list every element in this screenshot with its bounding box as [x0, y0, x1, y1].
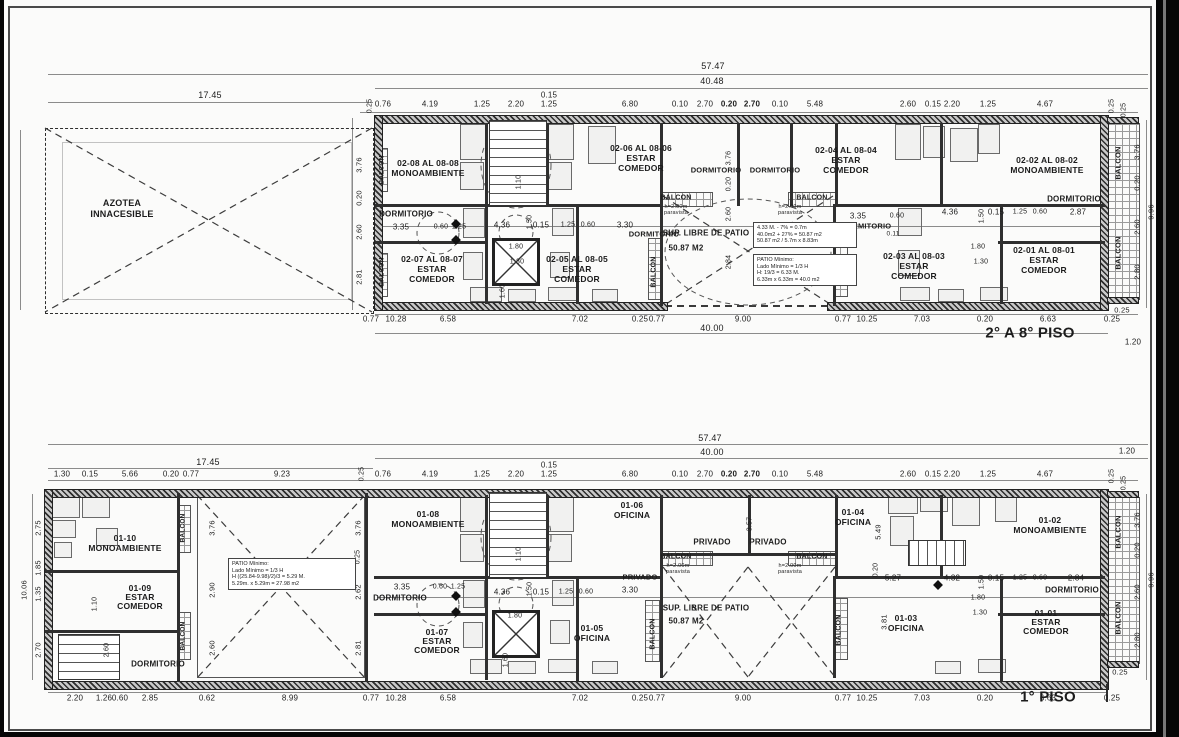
dim-text: paravista: [666, 569, 690, 575]
dim-text: 2.20: [944, 100, 960, 109]
note-line: Lado Mínimo = 1/3 H: [757, 264, 853, 271]
wall: [1108, 298, 1138, 303]
dim-text: 0.15: [988, 208, 1004, 217]
dim-text: 1.80: [508, 613, 522, 620]
dim-text: 4.36: [494, 221, 510, 230]
fixture: [978, 124, 1000, 154]
dim-text: 4.32: [944, 574, 960, 583]
dim-text: 2.20: [508, 100, 524, 109]
unit-01-08: 01-08: [417, 509, 440, 519]
dimension-line: [375, 458, 1148, 459]
dim-text: BALCON: [1114, 236, 1123, 269]
dim-text: 9.96: [1147, 204, 1156, 219]
wall: [1108, 492, 1138, 497]
dim-text: PRIVADO: [693, 538, 730, 547]
interior-wall: [45, 630, 179, 633]
dim-text: ESTAR: [1029, 255, 1058, 265]
dim-text: 2.80: [1133, 264, 1142, 279]
unit-02-01: 02-01 AL 08-01: [1013, 245, 1075, 255]
stair-unit-01-09: [58, 634, 120, 680]
fixture: [592, 289, 618, 302]
dim-text: 6.63: [1040, 315, 1056, 324]
fixture: [550, 620, 570, 644]
dim-text: 9.23: [274, 470, 290, 479]
dim-text: COMEDOR: [117, 601, 163, 611]
unit-01-05: 01-05: [581, 623, 604, 633]
dim-text: 0.15: [541, 91, 557, 100]
dim-text: BALCON: [836, 614, 843, 645]
dim-text: 1.25: [474, 100, 490, 109]
wall: [1101, 116, 1108, 310]
dim-text: 2.70: [697, 100, 713, 109]
dim-text: COMEDOR: [618, 163, 664, 173]
note-line: 50.87 m2 / 5.7m x 8.83m: [757, 238, 853, 245]
dim-text: BALCON: [1114, 601, 1123, 634]
dim-text: COMEDOR: [1021, 265, 1067, 275]
dim-text: 3.76: [208, 520, 217, 535]
azotea-label: AZOTEA: [103, 198, 141, 208]
dim-text: OFICINA: [574, 633, 610, 643]
dim-text: 1.50: [979, 575, 986, 589]
dimension-line: [20, 130, 21, 310]
wall: [45, 490, 1108, 497]
dim-text: 2.70: [744, 100, 760, 109]
dim-text: 40.00: [700, 447, 724, 457]
dim-text: MONOAMBIENTE: [88, 543, 161, 553]
dim-text: 3.35: [850, 212, 866, 221]
dim-text: 2.60: [104, 643, 111, 657]
dim-text: 1.25: [559, 589, 573, 596]
dim-text: 0.20: [355, 190, 364, 205]
dim-text: 3.35: [393, 223, 409, 232]
dim-text: 0.77: [835, 315, 851, 324]
dim-text: 0.20: [1133, 542, 1142, 557]
screen-edge-highlight: [1163, 0, 1166, 737]
dim-text: 7.03: [914, 315, 930, 324]
dim-text: 1.25: [541, 470, 557, 479]
dim-text: 1.25: [541, 100, 557, 109]
dim-text: 2.60: [900, 100, 916, 109]
unit-01-06: 01-06: [621, 500, 644, 510]
dim-text: 0.60: [112, 694, 128, 703]
fixture: [463, 580, 485, 608]
patio-note-min-upper: PATIO Mínimo:Lado Mínimo = 1/3 HH: 19/3 …: [753, 254, 857, 286]
note-line: 4.33 M. - 7% = 0.7m: [757, 225, 853, 232]
dim-text: 40.00: [700, 323, 724, 333]
dim-text: 1.50: [527, 215, 534, 229]
unit-02-06: 02-06 AL 08-06: [610, 143, 672, 153]
dim-text: INNACESIBLE: [90, 209, 153, 219]
dim-text: 1.30: [510, 259, 524, 266]
dim-total-upper: 57.47: [701, 61, 725, 71]
fixture: [463, 252, 483, 280]
dim-text: 2.81: [355, 269, 364, 284]
wall: [1101, 490, 1108, 689]
interior-wall: [660, 495, 663, 579]
dim-text: 0.20: [726, 177, 733, 191]
dim-text: 10.25: [856, 315, 877, 324]
dim-text: PRIVADO: [749, 538, 786, 547]
dimension-line: [48, 102, 373, 103]
dim-text: 0.15: [925, 470, 941, 479]
fixture: [895, 124, 921, 160]
dim-text: paravista: [778, 210, 802, 216]
patio-mid-cross-right: [748, 567, 835, 677]
fixture: [592, 661, 618, 674]
dim-text: 0.60: [434, 224, 448, 231]
screen-edge-right: [1156, 0, 1179, 737]
dim-azotea-width: 17.45: [198, 90, 222, 100]
fixture: [952, 496, 980, 526]
dim-text: 2.90: [208, 582, 217, 597]
fixture: [52, 520, 76, 538]
dim-text: OFICINA: [888, 623, 924, 633]
dim-text: BALCON: [1114, 146, 1123, 179]
dim-text: BALCON: [660, 554, 691, 561]
dim-text: OFICINA: [614, 510, 650, 520]
dim-text: 1.25: [980, 470, 996, 479]
dim-text: 0.15: [925, 100, 941, 109]
patio-note-min-lower: PATIO Mínimo:Lado Mínimo = 1/3 HH ((25.8…: [228, 558, 356, 590]
dim-text: 1.10: [516, 175, 523, 189]
dim-text: 1.25: [1013, 209, 1027, 216]
dim-text: 0.20: [721, 100, 737, 109]
dim-text: 1.80: [971, 244, 985, 251]
dim-text: 3.57: [747, 517, 754, 531]
dim-text: 2.75: [34, 520, 43, 535]
dim-text: BALCON: [651, 256, 658, 287]
wall: [45, 490, 52, 689]
dim-text: 0.25: [1109, 469, 1116, 483]
dim-text: 3.76: [1133, 144, 1142, 159]
dimension-line: [48, 480, 1138, 481]
dim-text: 0.77: [649, 694, 665, 703]
dim-text: 0.25: [1121, 476, 1128, 490]
dim-text: 50.87 M2: [669, 617, 704, 626]
dim-text: 0.15: [541, 461, 557, 470]
dim-text: 4.36: [494, 588, 510, 597]
dim-text: DORMITORIO: [691, 166, 742, 175]
fixture: [463, 622, 483, 648]
dim-text: 2.60: [355, 224, 364, 239]
dim-text: 1.30: [974, 259, 988, 266]
dim-text: 0.76: [375, 470, 391, 479]
interior-wall: [45, 570, 179, 573]
dim-text: 0.20: [1133, 175, 1142, 190]
dim-text: 9.00: [735, 315, 751, 324]
dim-text: 2.20: [508, 470, 524, 479]
fixture: [950, 128, 978, 162]
dim-text: 10.28: [385, 694, 406, 703]
wall: [828, 303, 1108, 310]
note-line: 6.33m x 6.33m = 40.0 m2: [757, 277, 853, 284]
fixture: [463, 208, 485, 238]
unit-02-08: 02-08 AL 08-08: [397, 158, 459, 168]
dim-text: 7.02: [572, 694, 588, 703]
plan-title-lower: 1° PISO: [1020, 689, 1076, 706]
azotea-cross: [45, 128, 372, 312]
wall: [1108, 118, 1138, 123]
dim-text: 1.30: [973, 610, 987, 617]
interior-wall: [660, 204, 663, 306]
dim-text: 8.99: [282, 694, 298, 703]
dim-text: 1.10: [92, 597, 99, 611]
dim-text: 0.60: [1033, 575, 1047, 582]
dim-text: 0.15: [82, 470, 98, 479]
dim-text: 2.80: [1133, 632, 1142, 647]
dimension-line: [375, 314, 1138, 315]
fixture: [980, 287, 1008, 301]
interior-wall: [1000, 578, 1003, 682]
dim-text: 3.81: [880, 614, 889, 629]
dim-text: 0.20: [873, 563, 880, 577]
dim-text: 6.80: [622, 100, 638, 109]
fixture: [900, 287, 930, 301]
dim-text: 3.30: [617, 221, 633, 230]
interior-wall: [1000, 206, 1003, 304]
dim-text: 1.10: [516, 547, 523, 561]
dim-text: 10.25: [856, 694, 877, 703]
dim-text: 3.76: [1133, 512, 1142, 527]
dim-text: 4.36: [942, 208, 958, 217]
dim-text: 5.66: [122, 470, 138, 479]
dim-text: 1.20: [1125, 338, 1141, 347]
unit-01-10: 01-10: [114, 533, 137, 543]
dim-text: BALCON: [796, 554, 827, 561]
dim-text: COMEDOR: [554, 274, 600, 284]
dim-text: 4.19: [422, 470, 438, 479]
note-line: 5.29m. x 5.29m = 27.98 m2: [232, 581, 352, 588]
dim-text: 6.58: [440, 694, 456, 703]
dim-text: 1.20: [1119, 447, 1135, 456]
dim-text: 0.11: [887, 231, 900, 238]
dim-text: 2.85: [142, 694, 158, 703]
dim-text: BALCON: [1114, 515, 1123, 548]
dim-text: 0.20: [977, 315, 993, 324]
dim-text: 0.25: [632, 694, 648, 703]
interior-wall: [485, 123, 488, 304]
dim-text: 3.35: [394, 583, 410, 592]
dim-text: 4.67: [1037, 100, 1053, 109]
unit-02-04: 02-04 AL 08-04: [815, 145, 877, 155]
dim-text: 2.60: [900, 470, 916, 479]
dim-text: BALCON: [660, 195, 691, 202]
dim-text: DORMITORIO: [379, 210, 433, 219]
dim-text: DORMITORIO: [750, 166, 801, 175]
dim-text: DORMITORIO: [373, 594, 427, 603]
dim-text: 0.77: [835, 694, 851, 703]
dim-text: 0.76: [375, 100, 391, 109]
patio-label-lower: SUP. LIBRE DE PATIO: [663, 604, 749, 613]
unit-01-04: 01-04: [842, 507, 865, 517]
dim-text: 0.25: [1104, 694, 1120, 703]
dim-text: 4.67: [1037, 470, 1053, 479]
dim-text: MONOAMBIENTE: [391, 519, 464, 529]
interior-wall: [998, 241, 1105, 244]
unit-01-03: 01-03: [895, 613, 918, 623]
fixture: [82, 496, 110, 518]
dim-text: BALCON: [650, 618, 657, 649]
dim-text: paravista: [778, 569, 802, 575]
dim-text: BALCON: [180, 621, 187, 650]
interior-wall: [835, 204, 1105, 207]
unit-02-07: 02-07 AL 08-07: [401, 254, 463, 264]
dim-text: 4.19: [422, 100, 438, 109]
dim-text: 3.76: [355, 157, 364, 172]
dim-text: ESTAR: [899, 261, 928, 271]
dim-text: 2.84: [1068, 574, 1084, 583]
dim-text: 2.60: [1133, 584, 1142, 599]
fixture: [508, 661, 536, 674]
interior-wall: [485, 495, 488, 680]
dim-text: DORMITORIO: [1047, 195, 1101, 204]
dim-text: 1.85: [34, 560, 43, 575]
interior-wall: [374, 613, 486, 616]
floor-plan-canvas: 57.4740.4817.450.764.191.252.200.151.256…: [0, 0, 1179, 737]
dim-text: 9.96: [1147, 572, 1156, 587]
dim-text: ESTAR: [626, 153, 655, 163]
dim-text: PRIVADO: [622, 573, 657, 582]
dim-text: 0.15: [988, 574, 1004, 583]
dim-text: BALCON: [796, 195, 827, 202]
dim-text: 0.25: [632, 315, 648, 324]
dim-text: 10.06: [20, 580, 29, 600]
dim-text: ESTAR: [417, 264, 446, 274]
interior-wall: [940, 123, 943, 206]
dim-text: 0.60: [433, 584, 447, 591]
dim-text: OFICINA: [835, 517, 871, 527]
dim-text: 0.25: [1112, 668, 1127, 677]
dim-text: 3.76: [726, 151, 733, 165]
dim-text: 1.30: [54, 470, 70, 479]
dim-text: 2.70: [744, 470, 760, 479]
dim-text: MONOAMBIENTE: [1010, 165, 1083, 175]
stair-core-lower: [489, 492, 547, 578]
dim-text: 1.25: [474, 470, 490, 479]
dim-text: 0.60: [1033, 209, 1047, 216]
dim-text: BALCON: [379, 155, 386, 184]
dim-text: 0.60: [890, 213, 904, 220]
dim-text: 10.28: [385, 315, 406, 324]
dim-text: 2.20: [944, 470, 960, 479]
screen-edge-bottom: [0, 732, 1179, 737]
dim-text: COMEDOR: [414, 645, 460, 655]
note-line: PATIO Mínimo:: [757, 257, 853, 264]
dim-text: 0.25: [367, 99, 374, 113]
wall: [45, 682, 1108, 689]
interior-wall: [835, 495, 838, 579]
dim-text: 2.70: [34, 642, 43, 657]
dim-text: MONOAMBIENTE: [1013, 525, 1086, 535]
dim-text: DORMITORIO: [131, 660, 185, 669]
dim-text: COMEDOR: [891, 271, 937, 281]
dim-text: 7.03: [914, 694, 930, 703]
dim-text: 1.60: [503, 653, 510, 667]
dim-text: BALCON: [180, 513, 187, 542]
dim-text: COMEDOR: [409, 274, 455, 284]
dim-text: 0.10: [672, 470, 688, 479]
fixture: [548, 287, 578, 301]
dim-text: 1.25: [980, 100, 996, 109]
dimension-line: [375, 88, 1148, 89]
unit-02-05: 02-05 AL 08-05: [546, 254, 608, 264]
dim-text: 0.25: [1109, 99, 1116, 113]
dim-text: 1.80: [509, 244, 523, 251]
dim-text: 2.70: [697, 470, 713, 479]
dim-text: 1.25: [1013, 575, 1027, 582]
dim-text: 0.60: [581, 222, 595, 229]
note-line: PATIO Mínimo:: [232, 561, 352, 568]
dim-text: 3.30: [622, 586, 638, 595]
note-line: Lado Mínimo = 1/3 H: [232, 568, 352, 575]
dim-text: 1.50: [979, 209, 986, 223]
dim-text: 0.25: [359, 467, 366, 481]
dim-text: 2.81: [354, 640, 363, 655]
dim-text: 0.77: [363, 315, 379, 324]
dimension-line: [360, 112, 1138, 113]
dim-text: 9.00: [735, 694, 751, 703]
screen-edge-left: [0, 0, 4, 737]
dim-text: COMEDOR: [823, 165, 869, 175]
dim-text: 1.25: [561, 222, 575, 229]
wall: [375, 303, 667, 310]
dim-text: 7.02: [572, 315, 588, 324]
dim-text: 0.10: [672, 100, 688, 109]
fixture: [548, 659, 578, 673]
dim-text: 5.27: [885, 574, 901, 583]
dim-text: 0.77: [649, 315, 665, 324]
dim-text: 1.60: [500, 284, 507, 298]
fixture: [888, 494, 918, 514]
note-line: H: 19/3 = 6.33 M.: [757, 270, 853, 277]
dim-text: 0.25: [1114, 306, 1129, 315]
stair-unit-01-03: [908, 540, 966, 566]
dimension-line: [48, 74, 1148, 75]
interior-wall: [375, 241, 487, 244]
dim-text: 1.25: [452, 224, 466, 231]
dim-text: 0.77: [363, 694, 379, 703]
dim-text: 0.15: [533, 588, 549, 597]
fixture: [54, 542, 72, 558]
dim-total-lower: 57.47: [698, 433, 722, 443]
patio-note-calc: 4.33 M. - 7% = 0.7m40.0m2 + 27% = 50.87 …: [753, 222, 857, 248]
fixture: [995, 496, 1017, 522]
interior-wall: [790, 123, 793, 206]
dim-text: 0.15: [533, 221, 549, 230]
dim-text: COMEDOR: [1023, 626, 1069, 636]
dim-text: 1.50: [527, 582, 534, 596]
dim-text: 0.20: [977, 694, 993, 703]
dim-text: 0.25: [1104, 315, 1120, 324]
dim-text: DORMITORIO: [1045, 586, 1099, 595]
dim-text: 50.87 M2: [669, 244, 704, 253]
unit-02-03: 02-03 AL 08-03: [883, 251, 945, 261]
dim-text: 2.60: [1133, 219, 1142, 234]
dim-17-45-lower: 17.45: [196, 457, 220, 467]
fixture: [935, 661, 961, 674]
note-line: 40.0m2 + 27% = 50.87 m2: [757, 232, 853, 239]
dim-text: 1.80: [971, 595, 985, 602]
dim-text: 2.20: [67, 694, 83, 703]
dim-text: 0.20: [163, 470, 179, 479]
dim-text: 1.35: [34, 586, 43, 601]
dim-text: 0.60: [579, 589, 593, 596]
dim-text: 0.20: [721, 470, 737, 479]
dim-text: 2.60: [208, 640, 217, 655]
dim-text: 6.80: [622, 470, 638, 479]
interior-wall: [365, 493, 368, 682]
dim-text: 2.87: [1070, 208, 1086, 217]
